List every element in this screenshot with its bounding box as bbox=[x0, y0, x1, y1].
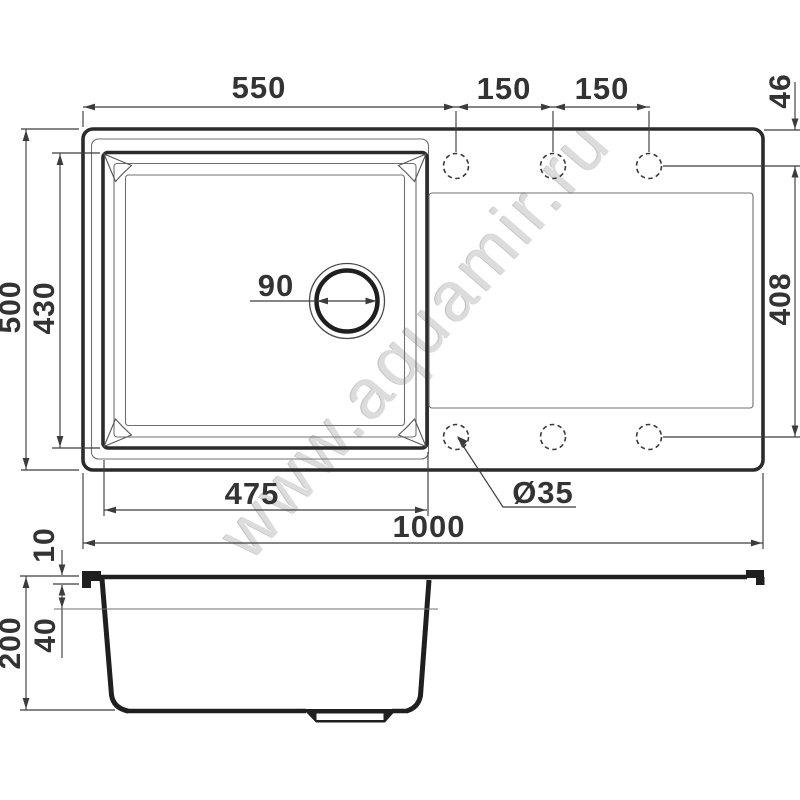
section-right-rim bbox=[746, 570, 765, 585]
dim-drainer-depth: 40 bbox=[29, 617, 63, 652]
section-drain-slot bbox=[317, 714, 384, 721]
faucet-holes bbox=[444, 154, 662, 450]
dim-bowl-outer-width: 550 bbox=[232, 70, 287, 106]
section-bowl-left-wall bbox=[102, 579, 128, 711]
side-view bbox=[54, 570, 765, 723]
dim-hole-diameter: Ø35 bbox=[512, 475, 574, 511]
dim-drain-diameter: 90 bbox=[258, 268, 294, 304]
dim-bowl-inner-width: 475 bbox=[225, 476, 280, 512]
sink-dimension-drawing: www.aquamir.ru bbox=[0, 0, 800, 800]
drainboard-outline bbox=[429, 193, 753, 408]
dim-overall-depth: 500 bbox=[0, 280, 28, 333]
sink-outline bbox=[83, 129, 763, 470]
dim-bowl-inner-depth: 430 bbox=[28, 281, 62, 334]
top-view bbox=[83, 129, 763, 470]
section-bowl-right-wall bbox=[407, 580, 430, 711]
dim-bowl-height: 200 bbox=[0, 616, 28, 669]
dimension-arrows bbox=[23, 104, 799, 709]
dim-holes-span: 408 bbox=[764, 272, 798, 325]
dim-hole-pitch-left: 150 bbox=[477, 71, 532, 107]
dim-hole-edge-offset: 46 bbox=[764, 73, 798, 108]
dim-rim-thickness: 10 bbox=[28, 527, 62, 562]
technical-drawing-canvas bbox=[0, 0, 800, 800]
dim-hole-pitch-right: 150 bbox=[575, 71, 630, 107]
dim-overall-width: 1000 bbox=[393, 509, 466, 545]
section-left-rim bbox=[82, 571, 101, 588]
